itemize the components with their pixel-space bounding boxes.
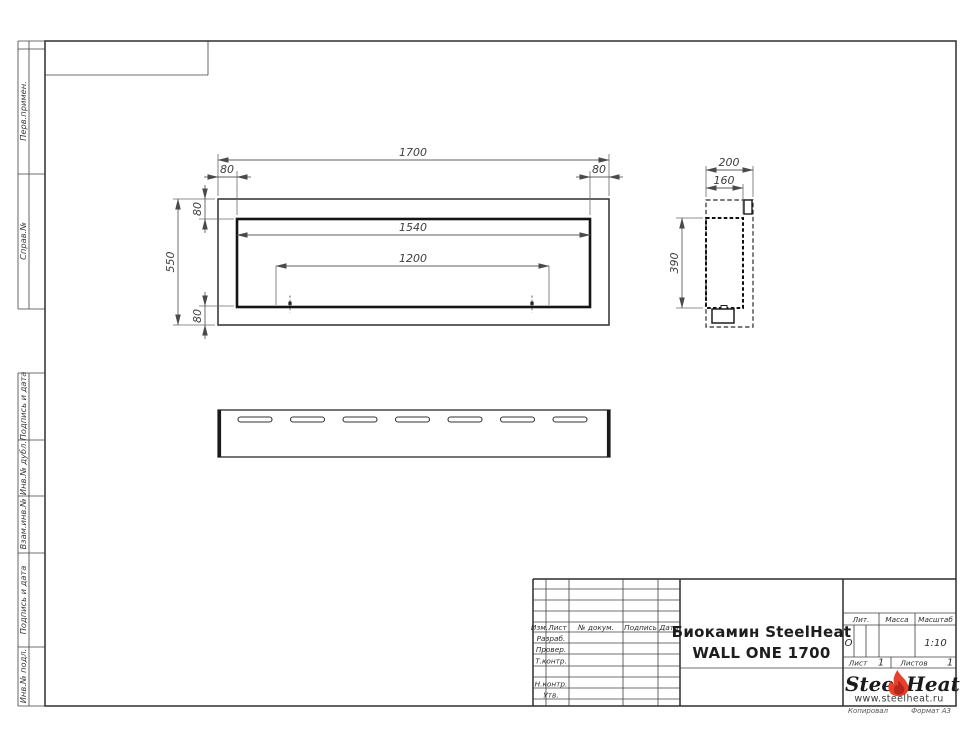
svg-text:80: 80 — [191, 202, 204, 216]
role-developed: Разраб. — [537, 634, 566, 643]
side-bracket — [744, 200, 752, 214]
svg-text:1700: 1700 — [399, 146, 427, 159]
dim-opening-height: 390 — [668, 218, 682, 308]
role-tcontrol: Т.контр. — [535, 657, 567, 666]
brand-website: www.steelheat.ru — [854, 694, 943, 705]
footer-copy: Копировал — [848, 707, 889, 715]
sheets-value: 1 — [947, 658, 953, 669]
svg-text:1540: 1540 — [399, 221, 427, 234]
margin-stamp-grid: Перв.примен. Справ.№ Подпись и дата Инв.… — [18, 41, 45, 706]
stamp-sprav-no: Справ.№ — [18, 222, 28, 260]
dim-edge-top: 80 — [191, 185, 205, 233]
svg-text:390: 390 — [668, 253, 681, 274]
role-approved: Утв. — [543, 691, 558, 700]
col-doc: № докум. — [577, 623, 614, 632]
brand-logo: Steel Heat www.steelheat.ru — [845, 670, 961, 705]
drawing-sheet: Перв.примен. Справ.№ Подпись и дата Инв.… — [0, 0, 970, 749]
scale-label: Масштаб — [918, 615, 953, 624]
stamp-podpis-data-2: Подпись и дата — [18, 566, 28, 635]
col-list: Лист — [547, 623, 567, 632]
svg-text:80: 80 — [592, 163, 606, 176]
top-left-designation-box — [45, 41, 208, 75]
stamp-perv-primen: Перв.примен. — [18, 81, 28, 141]
scale-value: 1:10 — [924, 638, 946, 649]
dim-overall-height: 550 — [164, 199, 178, 325]
role-checked: Провер. — [536, 645, 566, 654]
svg-text:1200: 1200 — [399, 252, 427, 265]
vent-slots — [238, 417, 587, 422]
svg-text:80: 80 — [220, 163, 234, 176]
svg-text:200: 200 — [719, 156, 740, 169]
front-view: 1700 80 80 550 80 — [164, 146, 623, 339]
title-block: Изм. Лист № докум. Подпись Дата Разраб. … — [531, 579, 961, 715]
svg-text:160: 160 — [714, 174, 735, 187]
footer-format: Формат А3 — [911, 707, 951, 715]
brand-heat: Heat — [905, 672, 961, 696]
sheet-svg: Перв.примен. Справ.№ Подпись и дата Инв.… — [0, 0, 970, 749]
stamp-inv-podl: Инв.№ подл. — [18, 649, 28, 704]
doc-title-line1: Биокамин SteelHeat — [672, 623, 852, 641]
stamp-vzam-inv: Взам.инв.№ — [18, 498, 28, 549]
stamp-podpis-data-1: Подпись и дата — [18, 372, 28, 441]
dim-overall-width: 1700 — [218, 146, 609, 160]
lit-label: Лит. — [852, 615, 870, 624]
role-ncontrol: Н.контр. — [535, 680, 568, 689]
doc-title-line2: WALL ONE 1700 — [692, 644, 830, 662]
burner-box — [712, 309, 734, 323]
stamp-inv-dubl: Инв.№ дубл. — [18, 441, 28, 495]
dim-depth: 200 — [706, 156, 753, 170]
svg-text:80: 80 — [191, 309, 204, 323]
sheet-frame — [18, 41, 956, 706]
dim-edge-bottom: 80 — [191, 292, 205, 339]
sheet-value: 1 — [878, 658, 884, 669]
dim-edge-left: 80 — [204, 163, 251, 177]
mass-label: Масса — [885, 615, 908, 624]
lit-value: О — [845, 638, 853, 649]
col-sign: Подпись — [624, 623, 657, 632]
col-izm: Изм. — [531, 623, 548, 632]
sheets-label: Листов — [899, 659, 927, 668]
dim-edge-right: 80 — [576, 163, 623, 177]
side-view: 200 160 390 — [668, 156, 753, 327]
svg-text:550: 550 — [164, 252, 177, 273]
dim-inner-depth: 160 — [706, 174, 743, 188]
bottom-view — [218, 410, 610, 457]
sheet-label: Лист — [848, 659, 868, 668]
